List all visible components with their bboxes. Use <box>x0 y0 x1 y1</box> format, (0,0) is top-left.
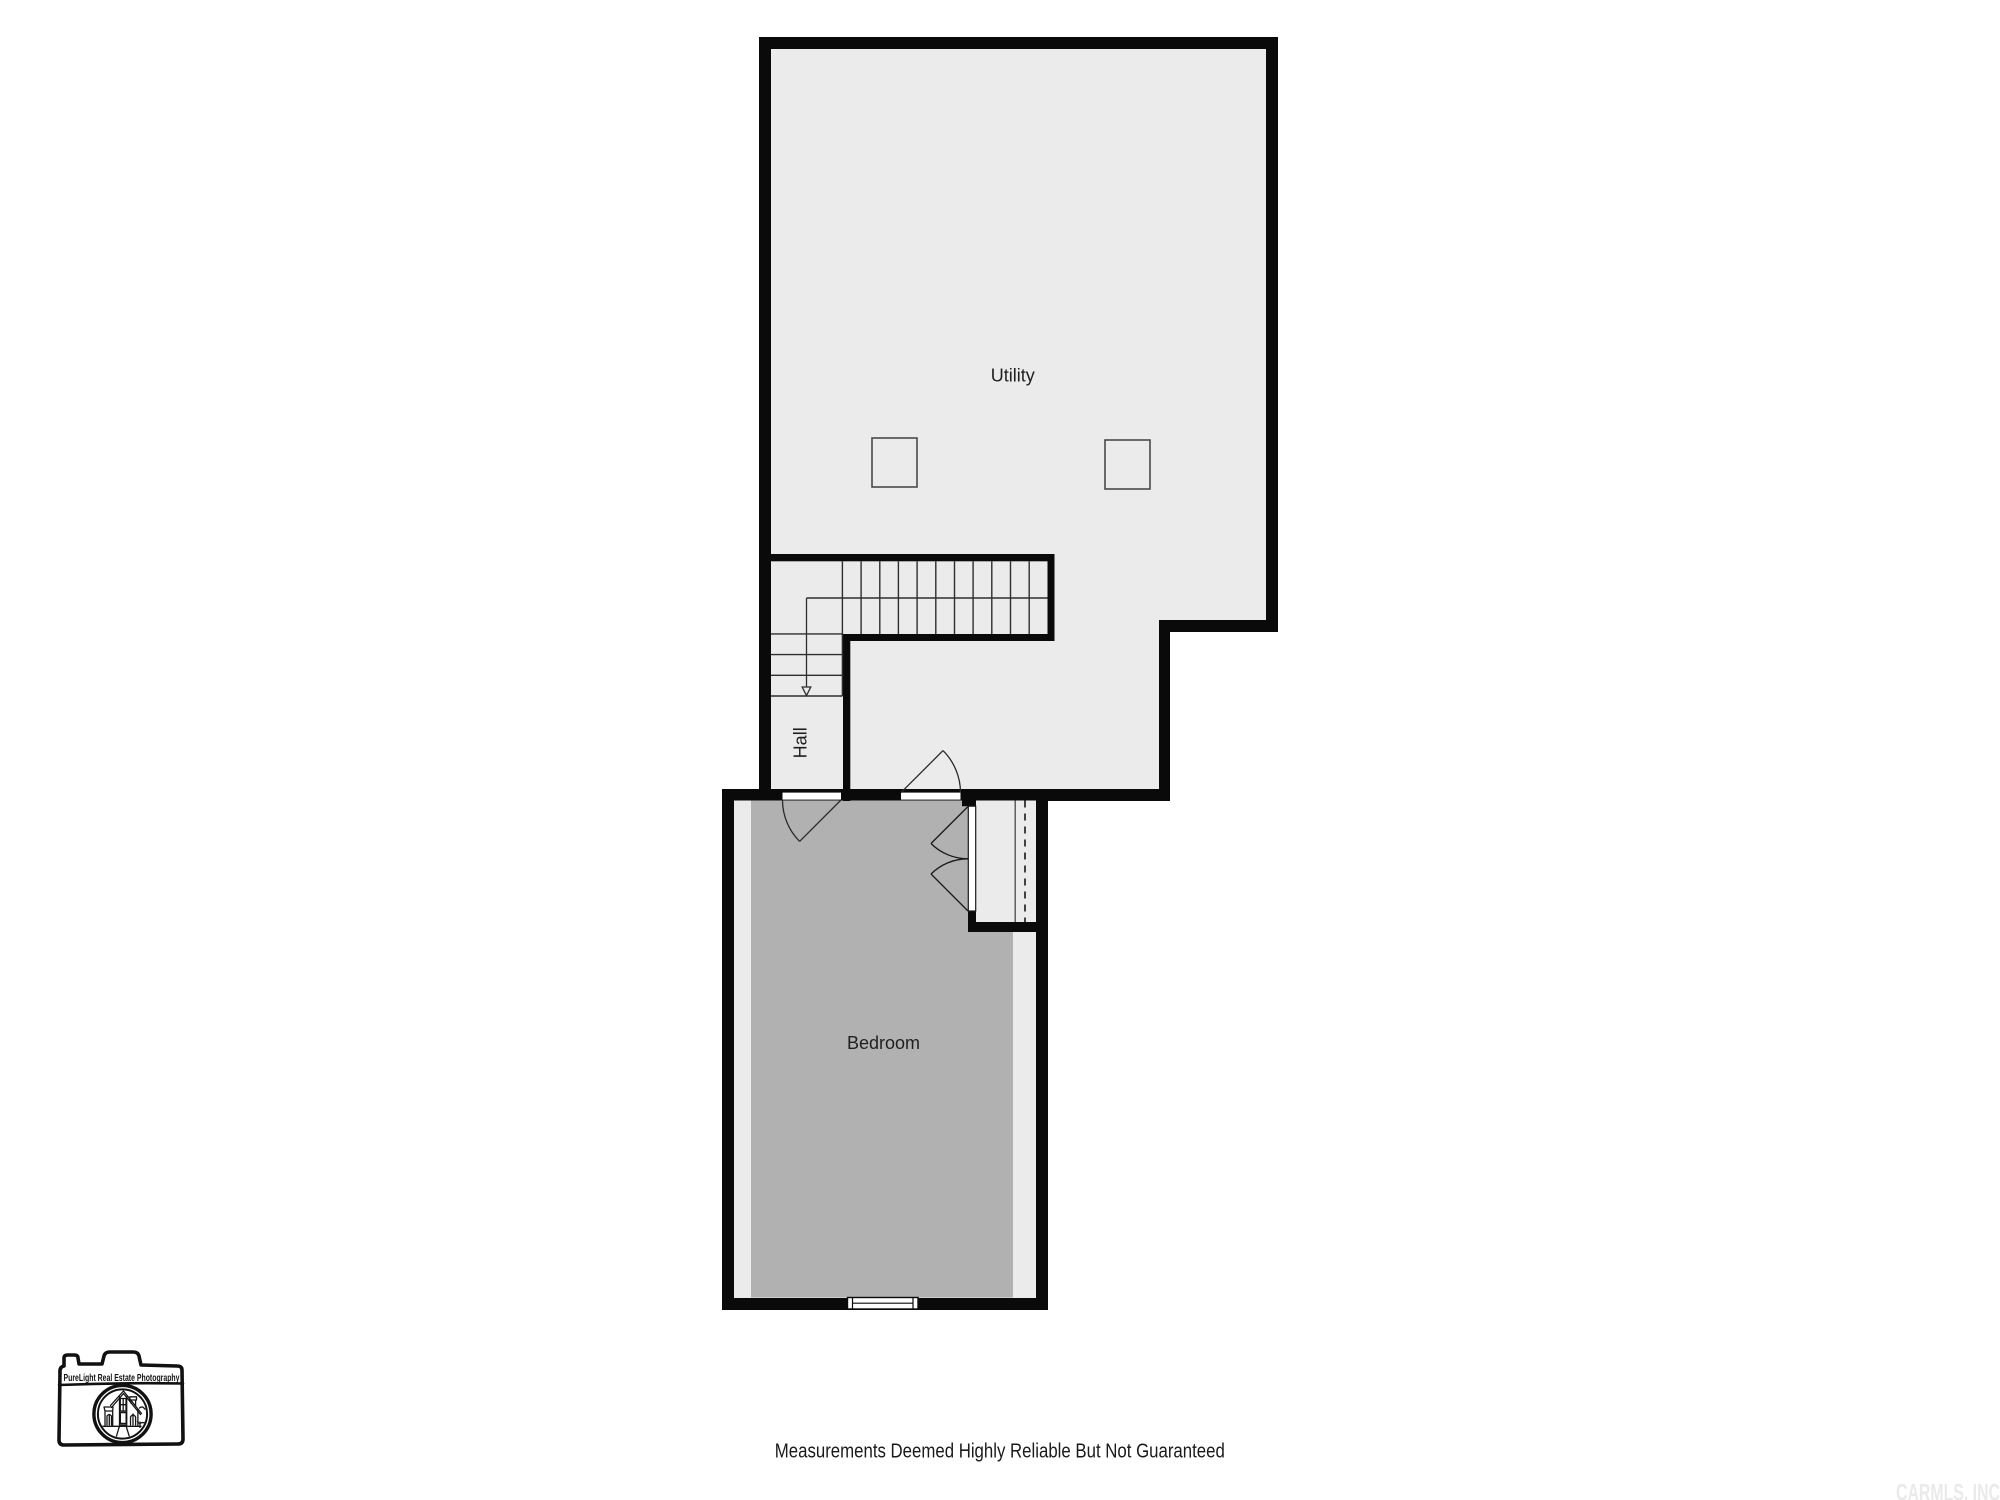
svg-text:Utility: Utility <box>991 366 1035 386</box>
svg-text:Measurements Deemed Highly Rel: Measurements Deemed Highly Reliable But … <box>775 1440 1225 1462</box>
svg-text:Hall: Hall <box>791 727 811 758</box>
svg-text:PureLight Real Estate Photogra: PureLight Real Estate Photography <box>64 1372 180 1384</box>
svg-text:Bedroom: Bedroom <box>847 1033 920 1053</box>
svg-text:CARMLS, INC: CARMLS, INC <box>1896 1480 2000 1500</box>
